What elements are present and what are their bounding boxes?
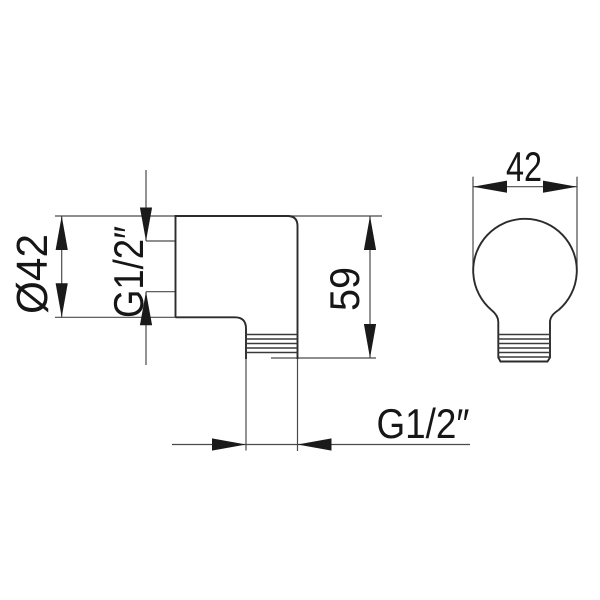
front-view-labels: 42	[506, 143, 542, 190]
arrowhead-down	[56, 283, 68, 317]
arrowhead-up	[364, 216, 376, 250]
drawing-svg: Ø42 G1/2″ 59 G1/2″	[0, 0, 600, 600]
body-bottom-outline	[176, 317, 247, 359]
arrowhead-up	[56, 216, 68, 250]
technical-drawing-canvas: Ø42 G1/2″ 59 G1/2″	[0, 0, 600, 600]
side-view-labels: Ø42 G1/2″ 59 G1/2″	[8, 226, 470, 447]
escutcheon-circle	[473, 219, 577, 310]
side-view-body	[176, 216, 298, 359]
dim-label-flange-diameter: Ø42	[8, 234, 57, 314]
arrowhead-right	[543, 181, 577, 193]
arrowhead-down	[364, 324, 376, 358]
dim-label-inlet-thread: G1/2″	[105, 226, 152, 318]
neck-right	[550, 310, 559, 335]
side-view: Ø42 G1/2″ 59 G1/2″	[8, 170, 470, 451]
side-view-arrowheads	[56, 208, 377, 451]
dim-label-outlet-thread: G1/2″	[377, 400, 470, 447]
arrowhead-left	[473, 181, 507, 193]
front-view-dimension-lines	[473, 177, 577, 270]
neck-left	[491, 310, 498, 335]
arrowhead-left	[298, 438, 332, 450]
dim-label-width: 42	[506, 143, 542, 190]
front-view: 42	[473, 143, 577, 362]
arrowhead-right	[212, 438, 246, 450]
body-outline	[176, 216, 298, 359]
dim-label-height: 59	[321, 267, 368, 311]
front-view-body	[473, 219, 577, 362]
